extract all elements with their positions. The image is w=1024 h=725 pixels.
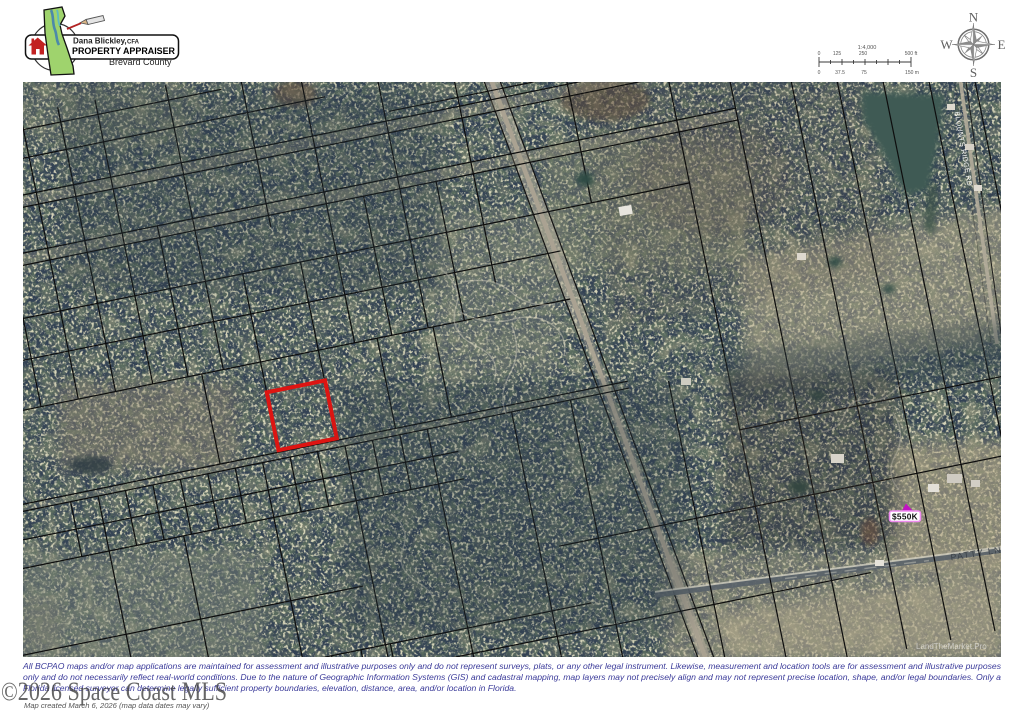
svg-text:W: W xyxy=(940,37,953,52)
svg-text:N: N xyxy=(969,10,979,25)
svg-text:S: S xyxy=(970,65,977,80)
svg-text:250: 250 xyxy=(859,51,868,57)
svg-text:150 m: 150 m xyxy=(905,70,919,76)
svg-text:0: 0 xyxy=(818,51,821,57)
svg-text:0: 0 xyxy=(818,70,821,76)
svg-text:500 ft: 500 ft xyxy=(905,51,918,57)
svg-text:Brevard County: Brevard County xyxy=(109,57,172,67)
svg-text:All BCPAO maps and/or map appl: All BCPAO maps and/or map applications a… xyxy=(22,661,1002,671)
svg-text:Map created March 6, 2026 (map: Map created March 6, 2026 (map data date… xyxy=(24,701,210,710)
svg-text:Dana Blickley,: Dana Blickley, xyxy=(73,37,127,46)
svg-text:75: 75 xyxy=(861,70,867,76)
svg-text:LandTheMarket.Pro: LandTheMarket.Pro xyxy=(916,642,987,651)
svg-text:$550K: $550K xyxy=(892,511,918,521)
svg-text:CFA: CFA xyxy=(127,40,140,46)
svg-text:PROPERTY APPRAISER: PROPERTY APPRAISER xyxy=(72,46,175,57)
svg-text:125: 125 xyxy=(833,51,842,57)
svg-text:37.5: 37.5 xyxy=(835,70,845,76)
svg-text:E: E xyxy=(998,37,1006,52)
